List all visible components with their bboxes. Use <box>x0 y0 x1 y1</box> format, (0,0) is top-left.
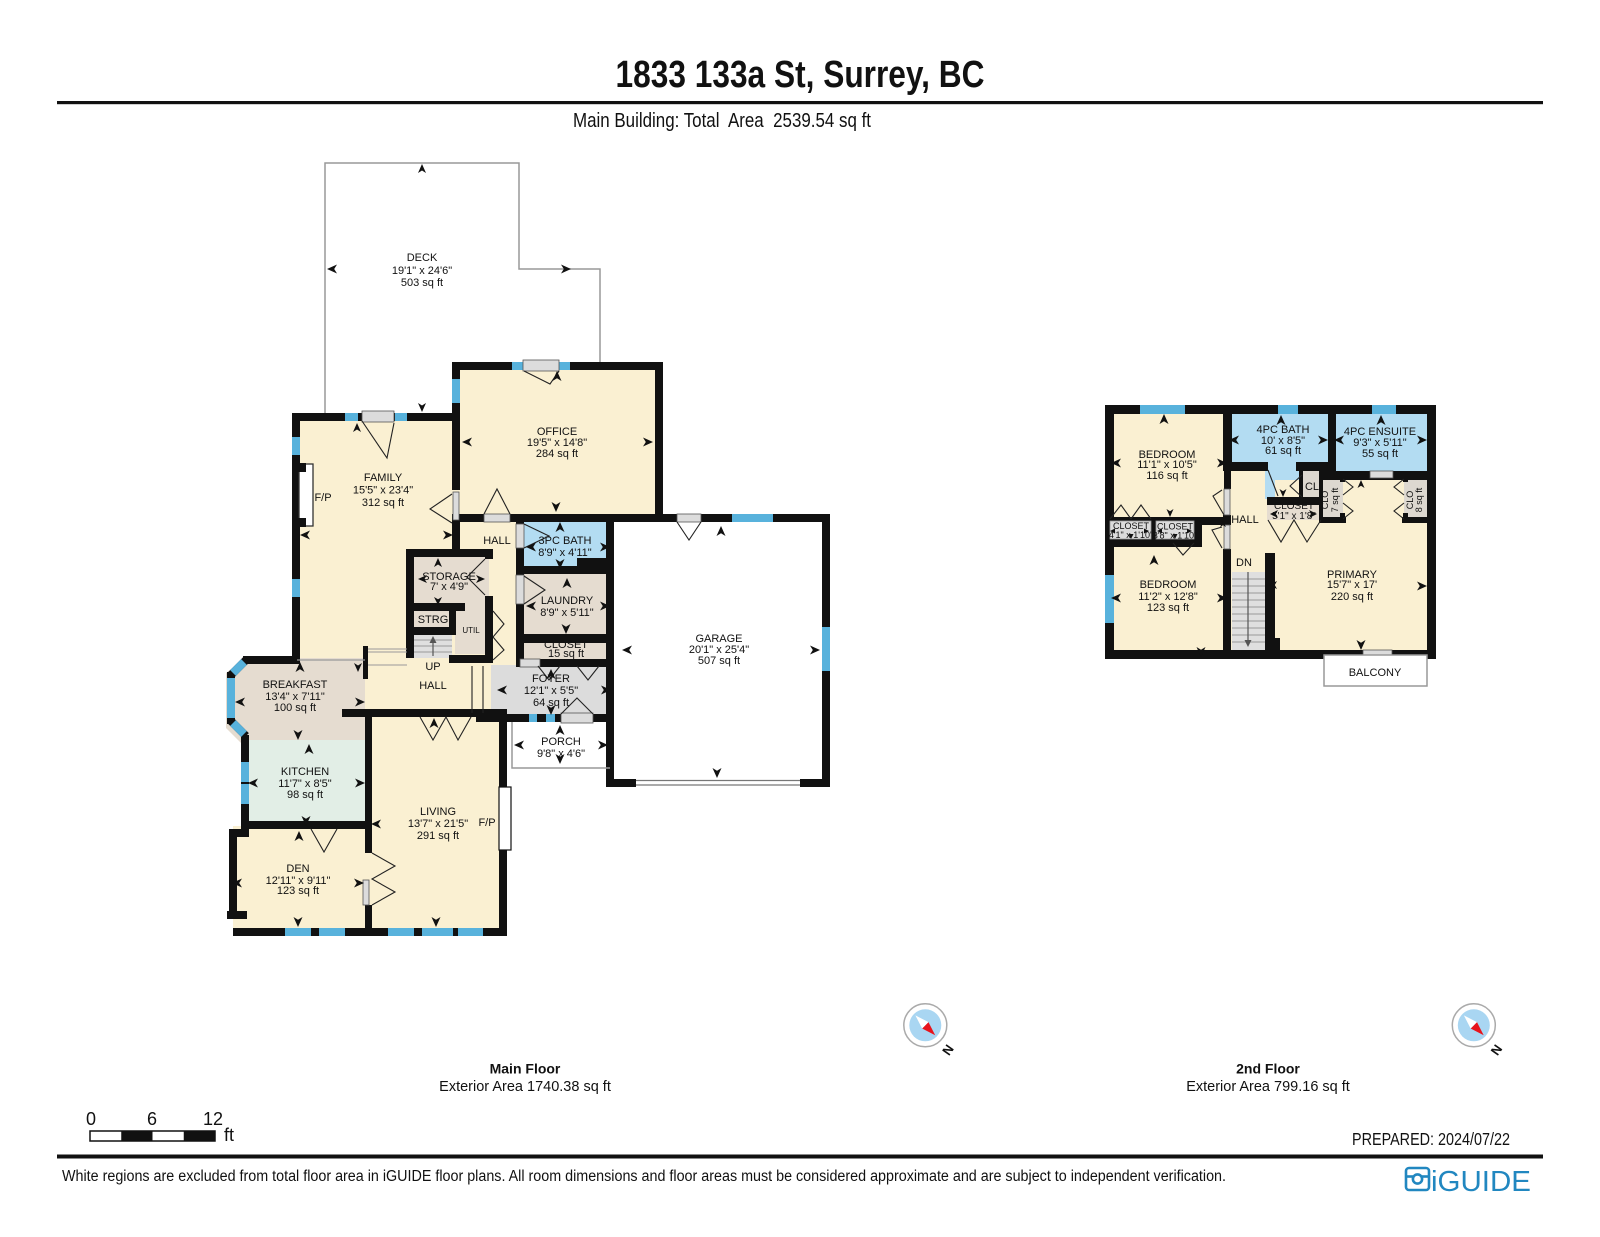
svg-text:HALL: HALL <box>483 535 511 547</box>
svg-text:ft: ft <box>224 1125 234 1145</box>
svg-text:116 sq ft: 116 sq ft <box>1146 470 1187 482</box>
svg-text:DN: DN <box>1236 557 1252 569</box>
svg-text:UTIL: UTIL <box>462 626 480 635</box>
svg-text:Exterior Area 1740.38 sq ft: Exterior Area 1740.38 sq ft <box>439 1079 611 1095</box>
svg-text:3PC BATH: 3PC BATH <box>539 535 592 547</box>
svg-text:8'9" x 4'11": 8'9" x 4'11" <box>538 547 591 559</box>
svg-text:61 sq ft: 61 sq ft <box>1265 445 1301 457</box>
svg-text:F/P: F/P <box>314 492 331 504</box>
svg-text:15'5" x 23'4": 15'5" x 23'4" <box>353 485 413 497</box>
svg-text:15 sq ft: 15 sq ft <box>548 648 584 660</box>
svg-text:2nd Floor: 2nd Floor <box>1236 1061 1300 1077</box>
svg-text:HALL: HALL <box>1231 514 1259 526</box>
svg-text:Exterior Area 799.16 sq ft: Exterior Area 799.16 sq ft <box>1186 1079 1350 1095</box>
svg-text:BALCONY: BALCONY <box>1349 667 1402 679</box>
svg-text:CLO: CLO <box>1320 491 1330 510</box>
svg-text:8 sq ft: 8 sq ft <box>1414 487 1424 512</box>
svg-text:White regions are excluded fro: White regions are excluded from total fl… <box>62 1168 1226 1185</box>
svg-text:HALL: HALL <box>419 680 447 692</box>
svg-text:7' x 4'9": 7' x 4'9" <box>430 581 468 593</box>
svg-text:220 sq ft: 220 sq ft <box>1331 591 1373 603</box>
svg-text:BREAKFAST: BREAKFAST <box>263 679 328 691</box>
svg-text:Main Building: Total Area 25: Main Building: Total Area 2539.54 sq ft <box>573 110 871 132</box>
svg-text:CL: CL <box>1305 481 1319 493</box>
svg-text:UP: UP <box>425 661 440 673</box>
svg-text:FAMILY: FAMILY <box>364 472 403 484</box>
svg-text:N: N <box>1488 1042 1506 1058</box>
svg-text:19'1" x 24'6": 19'1" x 24'6" <box>392 265 452 277</box>
svg-text:F/P: F/P <box>478 817 495 829</box>
svg-text:12: 12 <box>203 1109 223 1129</box>
svg-text:1833 133a St, Surrey, BC: 1833 133a St, Surrey, BC <box>616 54 985 96</box>
svg-text:507 sq ft: 507 sq ft <box>698 655 740 667</box>
svg-text:13'7" x 21'5": 13'7" x 21'5" <box>408 818 468 830</box>
svg-text:N: N <box>939 1042 957 1058</box>
svg-text:DECK: DECK <box>407 252 438 264</box>
svg-text:7 sq ft: 7 sq ft <box>1330 487 1340 512</box>
svg-text:12'1" x 5'5": 12'1" x 5'5" <box>524 685 578 697</box>
svg-text:64 sq ft: 64 sq ft <box>533 697 569 709</box>
svg-text:312 sq ft: 312 sq ft <box>362 497 404 509</box>
svg-text:8'9" x 5'11": 8'9" x 5'11" <box>540 607 593 619</box>
svg-text:BEDROOM: BEDROOM <box>1140 579 1197 591</box>
svg-text:DEN: DEN <box>286 863 309 875</box>
svg-text:iGUIDE: iGUIDE <box>1431 1166 1531 1198</box>
svg-text:123 sq ft: 123 sq ft <box>1147 602 1189 614</box>
svg-text:5'1" x 1'8": 5'1" x 1'8" <box>1272 511 1316 522</box>
svg-text:STRG: STRG <box>418 614 449 626</box>
svg-text:KITCHEN: KITCHEN <box>281 766 329 778</box>
svg-text:98 sq ft: 98 sq ft <box>287 789 323 801</box>
svg-text:PREPARED: 2024/07/22: PREPARED: 2024/07/22 <box>1352 1129 1510 1149</box>
svg-text:0: 0 <box>86 1109 96 1129</box>
svg-text:100 sq ft: 100 sq ft <box>274 702 316 714</box>
svg-text:Main Floor: Main Floor <box>490 1061 561 1077</box>
svg-text:291 sq ft: 291 sq ft <box>417 830 459 842</box>
svg-text:LAUNDRY: LAUNDRY <box>541 595 594 607</box>
svg-text:503 sq ft: 503 sq ft <box>401 277 443 289</box>
svg-text:15'7" x 17': 15'7" x 17' <box>1327 579 1377 591</box>
svg-text:123 sq ft: 123 sq ft <box>277 885 319 897</box>
svg-text:PORCH: PORCH <box>541 736 581 748</box>
svg-text:284 sq ft: 284 sq ft <box>536 448 578 460</box>
svg-text:LIVING: LIVING <box>420 806 456 818</box>
svg-text:6: 6 <box>147 1109 157 1129</box>
svg-text:55 sq ft: 55 sq ft <box>1362 448 1398 460</box>
